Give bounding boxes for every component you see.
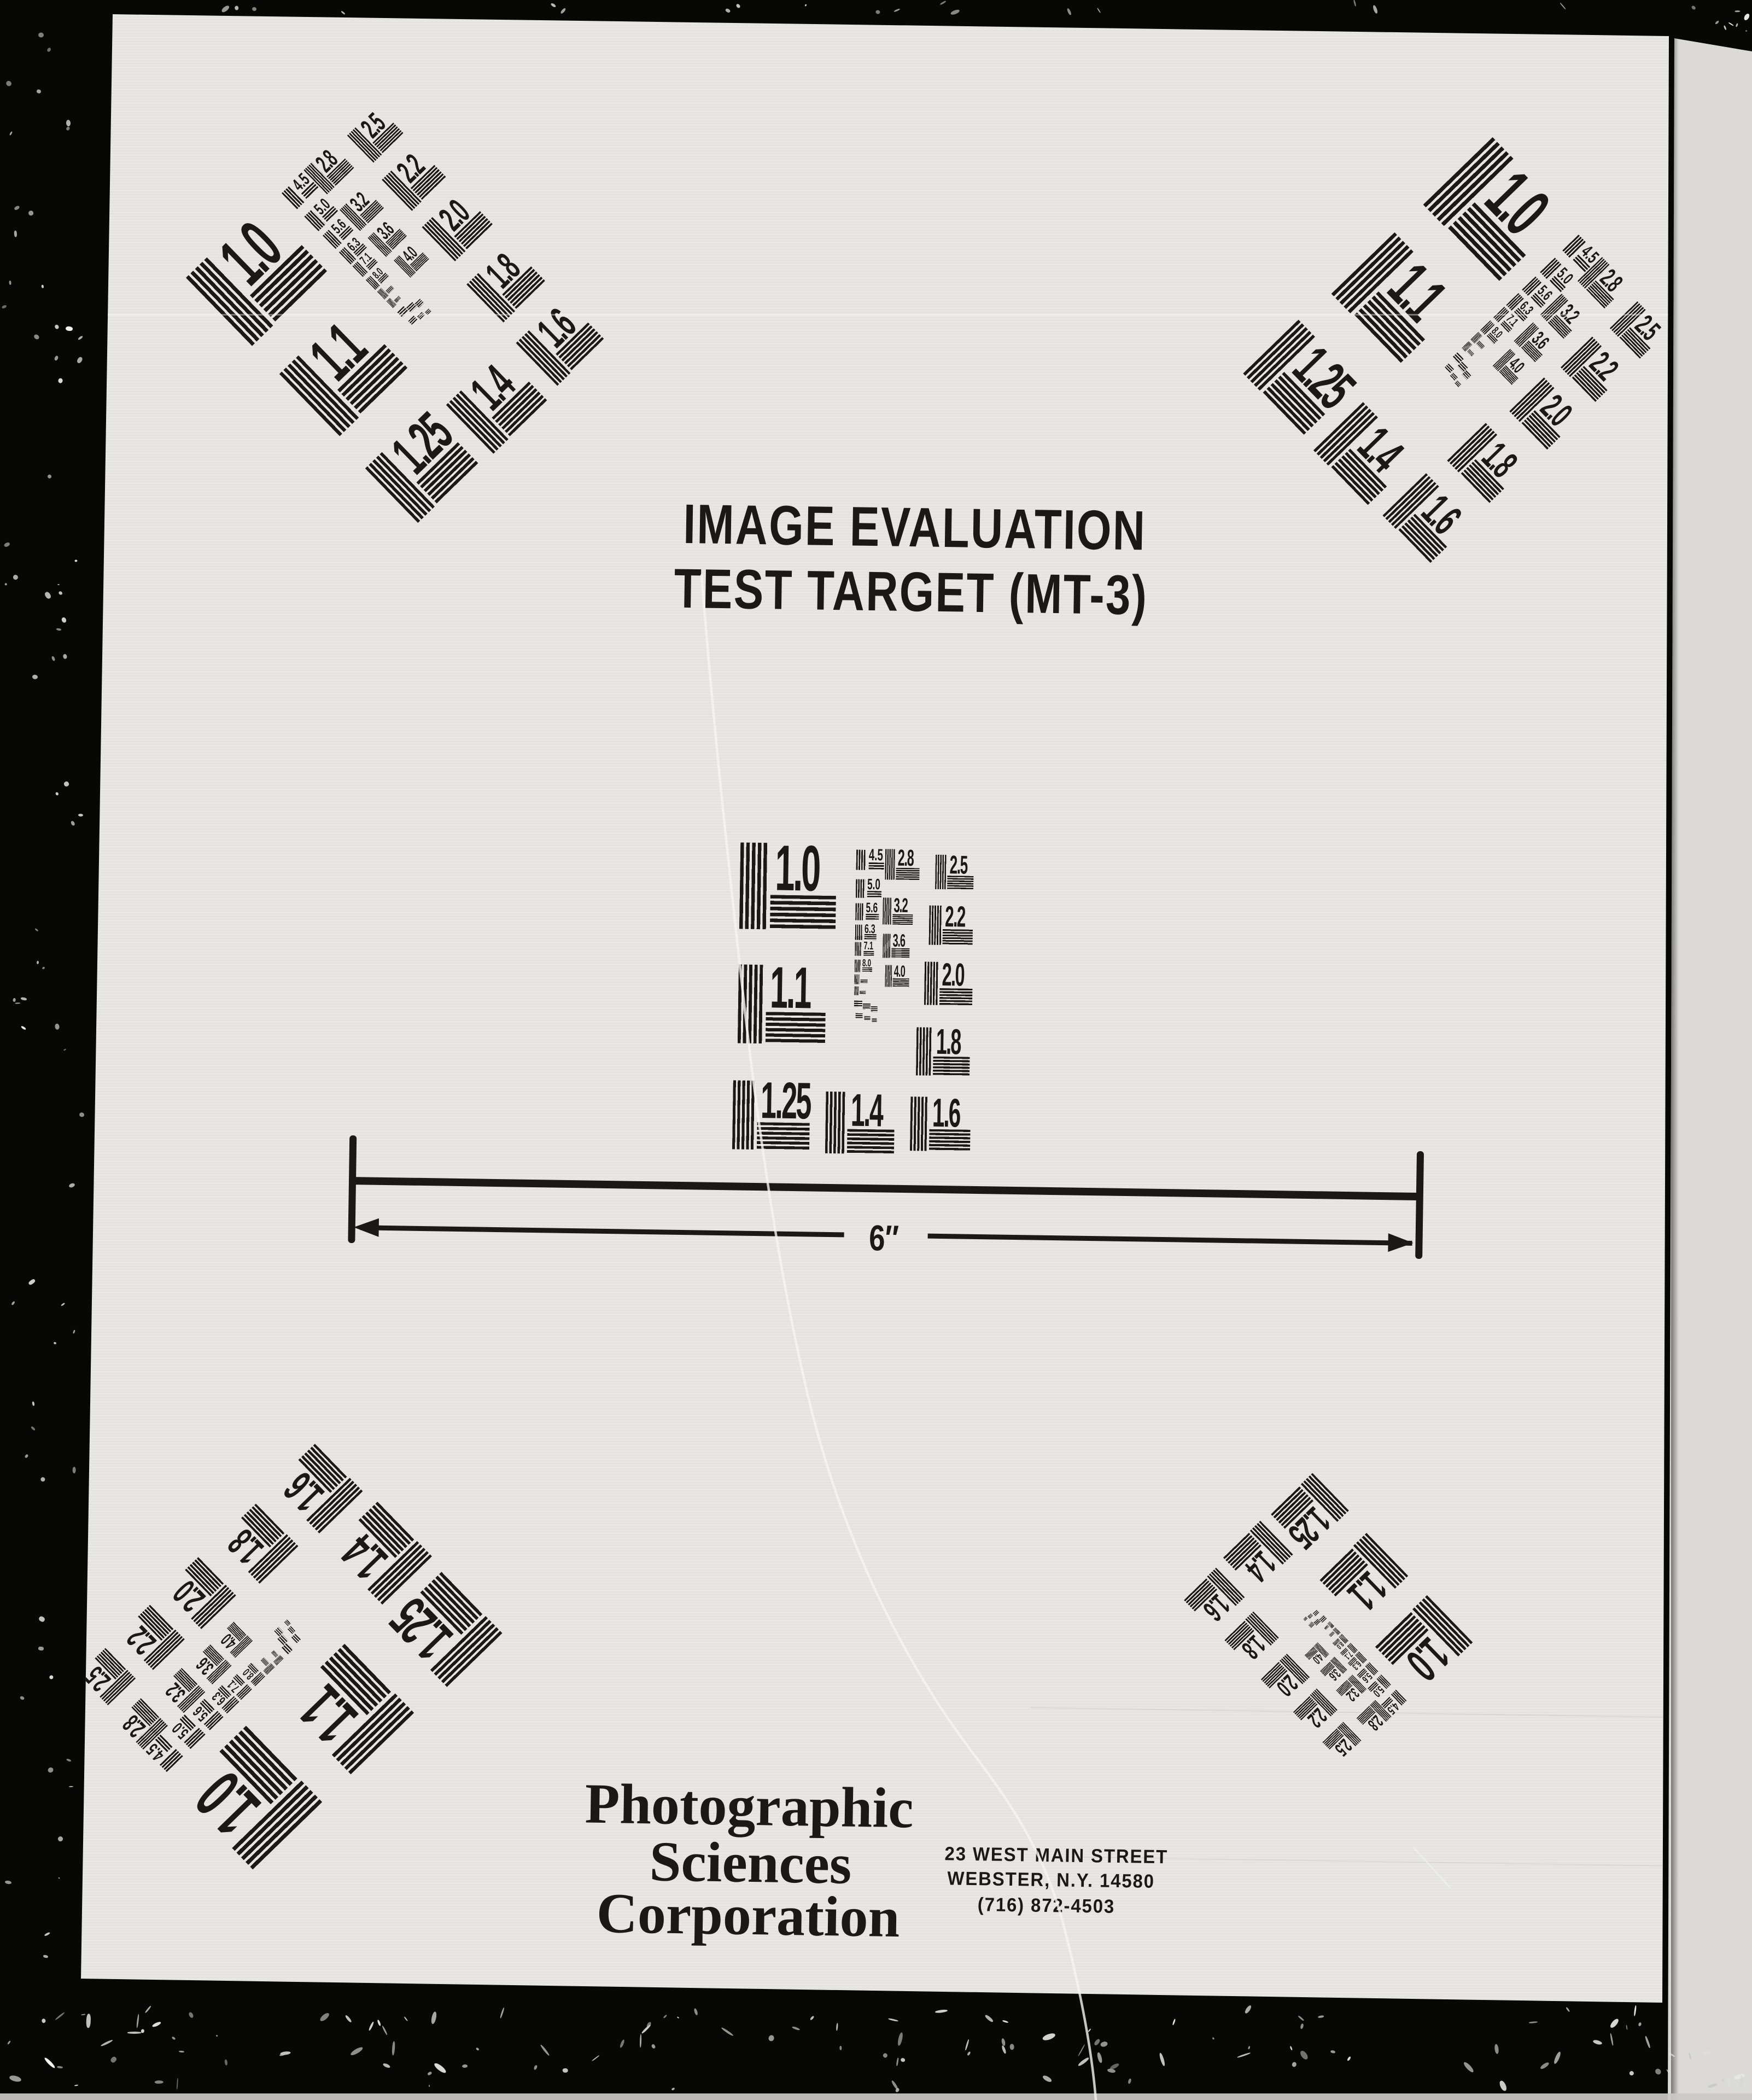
dust-speck — [1494, 2044, 1499, 2054]
resolution-patch: 1.4 — [446, 352, 548, 453]
resolution-patch: 2.5 — [1610, 301, 1668, 360]
dust-speck — [220, 4, 230, 14]
horizontal-bars-block — [1329, 1631, 1334, 1637]
dust-speck — [188, 2011, 194, 2019]
dust-speck — [891, 2080, 898, 2090]
dust-speck — [791, 2026, 800, 2031]
vertical-bars-block — [883, 897, 892, 925]
vertical-bars-block — [856, 879, 865, 898]
resolution-patch: 1.1 — [1331, 232, 1464, 365]
dust-speck — [74, 2084, 78, 2086]
dust-speck — [1002, 2020, 1009, 2023]
company-address-line2: WEBSTER, N.Y. 14580 — [947, 1869, 1155, 1891]
dust-speck — [127, 2031, 142, 2033]
horizontal-bars-block — [866, 914, 879, 920]
patch-value-label: 2.2 — [945, 902, 965, 932]
dust-speck — [1298, 2015, 1304, 2021]
dust-speck — [21, 997, 27, 1001]
dust-speck — [1372, 4, 1378, 14]
vertical-bars-block — [1333, 1627, 1340, 1636]
dust-speck — [1645, 2036, 1651, 2049]
dust-speck — [57, 1836, 64, 1842]
dust-speck — [57, 584, 60, 586]
resolution-patch: 2.0 — [422, 190, 494, 261]
dust-speck — [641, 2024, 651, 2034]
dust-speck — [1290, 2046, 1293, 2051]
dust-speck — [592, 2055, 600, 2062]
scale-bar: 6″ — [17, 0, 1752, 21]
dust-speck — [693, 2008, 698, 2016]
dust-speck — [1691, 5, 1696, 11]
dust-speck — [235, 5, 238, 10]
dust-speck — [651, 2044, 656, 2049]
dust-speck — [1093, 2039, 1100, 2046]
resolution-patch: 1.0 — [186, 203, 329, 346]
dust-speck — [967, 2051, 971, 2056]
dust-speck — [47, 1766, 54, 1773]
horizontal-bars-block — [862, 967, 872, 972]
dust-speck — [1001, 2038, 1006, 2046]
dust-speck — [560, 7, 567, 14]
dust-speck — [433, 2062, 447, 2075]
dust-speck — [1715, 20, 1720, 25]
dust-speck — [43, 1955, 48, 1958]
resolution-patch: 1.25 — [1243, 320, 1359, 436]
dust-speck — [1330, 2050, 1335, 2054]
horizontal-bars-block — [766, 1012, 826, 1045]
dust-speck — [62, 654, 67, 660]
dust-speck — [32, 674, 38, 679]
horizontal-bars-block — [867, 891, 881, 898]
scale-arrow-line-left — [360, 1225, 844, 1237]
dust-speck — [57, 2066, 63, 2068]
dust-speck — [279, 2051, 290, 2056]
micro-bars-mark — [1312, 1609, 1319, 1616]
resolution-patch: 1.25 — [1270, 1473, 1349, 1551]
dust-speck — [1001, 2045, 1007, 2054]
dust-speck — [179, 2051, 184, 2053]
dust-speck — [57, 378, 62, 383]
dust-speck — [11, 1301, 15, 1306]
dust-speck — [1609, 2017, 1620, 2029]
resolution-patch: 1.1 — [279, 306, 410, 436]
dust-speck — [1237, 2052, 1251, 2058]
small-value-label: 8.0 — [862, 958, 871, 969]
dust-speck — [1736, 23, 1739, 27]
patch-value-label: 4.0 — [894, 963, 906, 979]
dust-speck — [12, 574, 19, 580]
dust-speck — [1463, 2061, 1475, 2073]
company-name-line3: Corporation — [596, 1885, 900, 1946]
resolution-patch: 1.8 — [1224, 1612, 1278, 1666]
dust-speck — [1299, 2050, 1309, 2061]
dust-speck — [66, 126, 71, 131]
dust-speck — [1096, 8, 1101, 13]
dust-speck — [42, 966, 46, 969]
resolution-patch: 1.1 — [282, 1642, 414, 1774]
vertical-bars-block — [910, 1096, 928, 1151]
dust-speck — [1088, 2028, 1091, 2032]
resolution-patch: 2.0 — [1509, 377, 1582, 450]
resolution-patch: 1.8 — [916, 1027, 971, 1076]
horizontal-bars-block — [757, 1122, 810, 1151]
dust-speck — [1560, 2, 1566, 10]
resolution-patch: 2.0 — [163, 1556, 236, 1629]
resolution-patch: 1.6 — [910, 1096, 972, 1151]
dust-speck — [36, 961, 39, 965]
dust-speck — [152, 2021, 162, 2028]
dust-speck — [984, 2014, 994, 2022]
micro-bars-mark — [1454, 381, 1461, 388]
dust-speck — [1626, 2025, 1627, 2030]
vertical-bars-block — [885, 849, 895, 880]
dust-speck — [639, 2034, 641, 2047]
dust-speck — [725, 8, 731, 14]
dust-speck — [70, 820, 75, 826]
dust-speck — [1066, 8, 1072, 15]
patch-value-label: 1.4 — [850, 1087, 883, 1133]
arrow-right-icon — [1388, 1233, 1413, 1252]
dust-speck — [382, 2026, 388, 2035]
dust-speck — [73, 1329, 75, 1334]
dust-speck — [252, 7, 257, 11]
dust-speck — [76, 357, 83, 364]
dust-speck — [53, 1341, 56, 1345]
patch-value-label: 2.5 — [949, 852, 967, 878]
horizontal-bars-block — [891, 948, 910, 958]
horizontal-bars-block — [929, 1129, 971, 1151]
dust-speck — [551, 2, 557, 7]
resolution-patch: 2.2 — [119, 1604, 185, 1670]
dust-speck — [42, 2018, 46, 2023]
dust-speck — [49, 1675, 54, 1679]
horizontal-bars-block — [943, 929, 973, 945]
resolution-patch: 1.8 — [218, 1503, 299, 1584]
dust-speck — [368, 2021, 374, 2031]
arrow-left-icon — [354, 1218, 379, 1237]
dust-speck — [810, 2016, 815, 2021]
resolution-patch: 2.2 — [1293, 1689, 1338, 1734]
dust-speck — [68, 1182, 75, 1188]
dust-speck — [47, 474, 52, 480]
dust-speck — [78, 814, 83, 816]
patch-value-label: 2.0 — [942, 959, 964, 991]
micro-bars-mark — [871, 1006, 878, 1012]
test-pattern-bottom-left: 1.01.11.251.41.61.82.02.22.52.83.23.64.0… — [72, 1443, 504, 1872]
dust-speck — [895, 2087, 900, 2093]
dust-speck — [9, 131, 13, 136]
resolution-patch: 2.2 — [929, 906, 974, 946]
small-value-label: 4.5 — [869, 847, 883, 864]
dust-speck — [5, 1880, 12, 1885]
target-title-line1: IMAGE EVALUATION — [683, 496, 1147, 559]
dust-speck — [38, 1615, 45, 1623]
dust-speck — [721, 2027, 734, 2037]
resolution-patch: 1.6 — [1183, 1568, 1245, 1630]
resolution-patch: 1.25 — [386, 1571, 503, 1687]
dust-speck — [69, 1786, 73, 1787]
dust-speck — [1300, 2023, 1304, 2029]
resolution-patch: 2.5 — [347, 106, 405, 162]
horizontal-bars-block — [847, 1129, 894, 1154]
dust-speck — [1009, 2044, 1014, 2051]
dust-speck — [768, 2034, 775, 2041]
dust-speck — [1529, 2022, 1538, 2024]
dust-speck — [1077, 2056, 1089, 2067]
resolution-patch: 4.0 — [216, 1621, 252, 1658]
dust-speck — [1, 304, 7, 309]
resolution-patch: 4.0 — [885, 965, 909, 987]
micro-bars-mark — [864, 1016, 870, 1021]
dust-speck — [883, 2052, 889, 2058]
dust-speck — [735, 3, 741, 9]
dust-speck — [63, 781, 69, 787]
dust-speck — [935, 2009, 948, 2013]
patch-value-label: 1.8 — [936, 1024, 961, 1060]
resolution-patch: 1.4 — [825, 1092, 896, 1154]
dust-speck — [13, 998, 16, 1002]
dust-speck — [54, 324, 60, 329]
micro-resolution-item — [854, 987, 867, 996]
dust-speck — [66, 120, 71, 126]
test-pattern-group: 1.01.11.251.41.61.82.02.22.52.83.23.64.0… — [17, 0, 1752, 21]
dust-speck — [1592, 2039, 1602, 2045]
horizontal-bars-block — [861, 979, 868, 983]
dust-speck — [888, 2018, 898, 2022]
dust-speck — [36, 89, 42, 95]
dust-speck — [56, 628, 62, 631]
resolution-patch: 1.8 — [466, 243, 546, 322]
dust-speck — [46, 47, 51, 52]
dust-speck — [1633, 2005, 1637, 2016]
dust-speck — [1610, 2033, 1614, 2046]
horizontal-bars-block — [892, 914, 913, 925]
test-pattern-center: 1.01.11.251.41.61.82.02.22.52.83.23.64.0… — [732, 842, 972, 1154]
dust-speck — [940, 1, 946, 5]
resolution-patch: 4.0 — [394, 242, 429, 277]
dust-speck — [65, 326, 72, 331]
page-content: IMAGE EVALUATION TEST TARGET (MT-3) 1.01… — [0, 0, 1752, 2100]
patch-value-label: 1.6 — [932, 1093, 960, 1133]
vertical-bars-block — [885, 965, 892, 987]
micro-bars-mark — [1303, 1616, 1308, 1621]
vertical-bars-block — [825, 1092, 846, 1153]
dust-speck — [136, 2014, 139, 2028]
dust-speck — [39, 33, 44, 38]
patch-value-label: 3.6 — [892, 932, 905, 950]
dust-speck — [462, 2064, 468, 2068]
small-value-label: 6.3 — [865, 923, 875, 935]
company-name-line1: Photographic — [585, 1776, 914, 1837]
dust-speck — [55, 791, 60, 796]
resolution-patch: 1.4 — [328, 1501, 432, 1605]
dust-speck — [837, 2023, 839, 2031]
resolution-patch: 2.0 — [1260, 1654, 1310, 1703]
vertical-bars-block — [856, 850, 867, 870]
micro-bars-mark — [284, 1619, 291, 1626]
dust-speck — [540, 2044, 550, 2056]
target-title-line2: TEST TARGET (MT-3) — [674, 561, 1148, 623]
dust-speck — [110, 2056, 118, 2063]
film-edge-strip — [0, 2093, 1752, 2100]
horizontal-bars-block — [896, 868, 919, 880]
resolution-patch: 1.8 — [1447, 423, 1528, 504]
resolution-patch: 1.1 — [738, 965, 827, 1045]
resolution-patch: 4.0 — [1493, 349, 1529, 386]
scale-bar-line — [353, 1177, 1419, 1200]
vertical-bars-block — [924, 962, 939, 1005]
resolution-patch: 2.5 — [78, 1647, 136, 1706]
small-resolution-item: 4.5 — [856, 850, 887, 871]
dust-speck — [31, 1426, 36, 1431]
resolution-patch: 1.1 — [1318, 1533, 1408, 1623]
small-value-label: 5.0 — [867, 877, 880, 892]
dust-speck — [1540, 2062, 1550, 2070]
vertical-bars-block — [1470, 332, 1482, 343]
dust-speck — [1735, 10, 1741, 13]
film-frame: IMAGE EVALUATION TEST TARGET (MT-3) 1.01… — [0, 0, 1752, 2100]
dust-speck — [950, 9, 960, 16]
dust-speck — [499, 2007, 504, 2019]
dust-speck — [965, 2039, 970, 2051]
company-address-line1: 23 WEST MAIN STREET — [944, 1844, 1168, 1866]
dust-speck — [1243, 2005, 1252, 2015]
dust-speck — [1096, 2052, 1103, 2063]
dust-speck — [51, 656, 55, 662]
vertical-bars-block — [929, 906, 943, 945]
horizontal-bars-block — [933, 1057, 970, 1076]
dust-speck — [1318, 2015, 1324, 2019]
resolution-patch: 2.2 — [1561, 337, 1627, 403]
resolution-patch: 2.5 — [935, 855, 974, 890]
dust-speck — [171, 2036, 176, 2040]
dust-speck — [1172, 2019, 1176, 2025]
dust-speck — [1638, 2022, 1642, 2027]
resolution-patch: 2.0 — [924, 962, 973, 1006]
scan-artifact-line — [1084, 1857, 1742, 1868]
dust-speck — [476, 2047, 480, 2051]
horizontal-bars-block — [271, 1650, 278, 1658]
dust-speck — [59, 1877, 60, 1879]
dust-speck — [1078, 2044, 1085, 2056]
dust-speck — [61, 617, 67, 623]
resolution-patch: 1.4 — [1313, 402, 1417, 506]
dust-speck — [1347, 2056, 1352, 2062]
resolution-patch: 2.8 — [885, 849, 920, 880]
horizontal-bars-block — [261, 1658, 269, 1666]
dust-speck — [54, 355, 59, 361]
dust-speck — [3, 541, 10, 548]
small-resolution-item: 7.1 — [855, 942, 875, 956]
vertical-bars-block — [854, 987, 859, 995]
dust-speck — [377, 2019, 381, 2026]
dust-speck — [28, 211, 34, 215]
vertical-bars-block — [854, 975, 860, 984]
horizontal-bars-block — [394, 296, 401, 303]
dust-speck — [619, 2039, 625, 2048]
vertical-bars-block — [855, 942, 862, 956]
resolution-patch: 1.0 — [739, 843, 838, 931]
dust-speck — [44, 1932, 50, 1936]
dust-speck — [341, 10, 346, 15]
dust-speck — [344, 2015, 352, 2023]
dust-speck — [279, 2053, 287, 2057]
dust-speck — [1212, 2037, 1214, 2040]
patch-value-label: 1.0 — [775, 836, 820, 901]
dust-speck — [1723, 25, 1727, 30]
dust-speck — [534, 2064, 538, 2070]
vertical-bars-block — [738, 965, 764, 1043]
dust-speck — [1042, 2075, 1052, 2084]
dust-speck — [28, 1279, 36, 1286]
dust-speck — [1353, 0, 1356, 7]
dust-speck — [839, 2046, 842, 2050]
dust-speck — [224, 2059, 227, 2066]
resolution-patch: 3.2 — [883, 897, 913, 925]
dust-speck — [81, 2014, 85, 2016]
dust-speck — [1292, 2062, 1298, 2068]
dust-speck — [73, 1467, 76, 1473]
dust-speck — [78, 336, 84, 341]
micro-bars-mark — [288, 1626, 296, 1634]
dust-speck — [4, 582, 8, 585]
dust-speck — [1566, 2007, 1570, 2012]
resolution-patch: 2.5 — [1322, 1722, 1361, 1761]
dust-speck — [100, 2039, 113, 2047]
dust-speck — [1107, 2068, 1116, 2073]
dust-speck — [35, 929, 39, 932]
micro-bars-mark — [417, 312, 425, 320]
scanned-page: IMAGE EVALUATION TEST TARGET (MT-3) 1.01… — [0, 0, 1752, 2100]
dust-speck — [319, 2012, 330, 2022]
micro-bars-mark — [1307, 1613, 1313, 1619]
dust-speck — [44, 591, 52, 599]
vertical-bars-block — [855, 903, 864, 920]
dust-speck — [428, 2085, 429, 2087]
small-resolution-item: 6.3 — [855, 925, 878, 941]
dust-speck — [9, 281, 11, 285]
dust-speck — [1128, 2078, 1132, 2084]
patch-value-label: 1.25 — [761, 1075, 811, 1128]
horizontal-bars-block — [939, 988, 972, 1005]
dust-speck — [15, 1002, 20, 1004]
horizontal-bars-block — [860, 991, 866, 994]
dust-speck — [74, 559, 77, 562]
dust-speck — [14, 230, 17, 237]
dust-speck — [14, 205, 20, 211]
dust-speck — [1628, 2070, 1634, 2076]
resolution-patch: 1.0 — [1423, 137, 1569, 283]
micro-bars-mark — [291, 1633, 301, 1643]
horizontal-bars-block — [869, 862, 884, 870]
dust-speck — [7, 2040, 11, 2045]
dust-speck — [1248, 2046, 1251, 2050]
dust-speck — [32, 1401, 35, 1406]
dust-speck — [1042, 2033, 1056, 2042]
resolution-patch: 3.6 — [883, 934, 910, 958]
patch-value-label: 3.2 — [893, 896, 908, 916]
dust-speck — [20, 1696, 25, 1700]
test-pattern-bottom-right: 1.01.11.251.41.61.82.02.22.52.83.23.64.0… — [1183, 1472, 1475, 1765]
scale-bar-label: 6″ — [869, 1220, 900, 1256]
patch-value-label: 2.8 — [897, 847, 913, 870]
resolution-patch: 1.4 — [1223, 1521, 1293, 1591]
dust-speck — [350, 2046, 364, 2056]
dust-speck — [1159, 2052, 1166, 2067]
company-address-line3: (716) 872-4503 — [978, 1895, 1116, 1916]
dust-speck — [5, 80, 12, 87]
dust-speck — [897, 2032, 903, 2046]
